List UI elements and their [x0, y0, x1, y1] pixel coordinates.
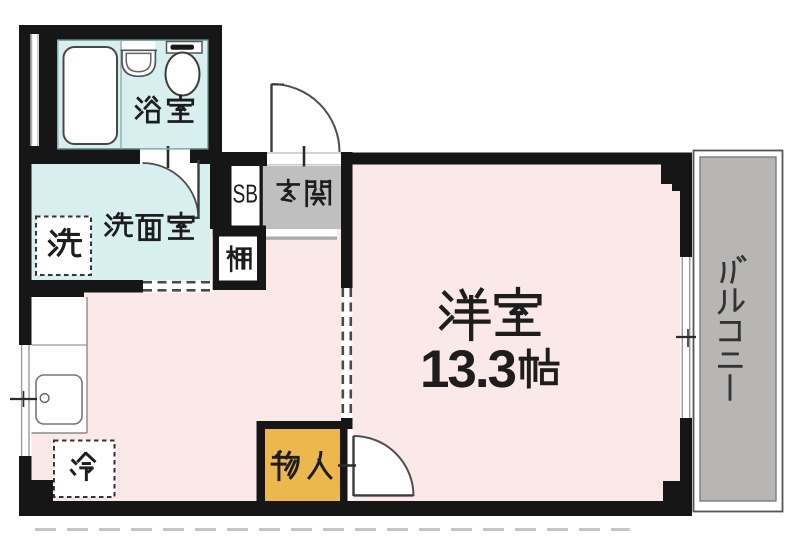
svg-text:SB: SB	[233, 179, 259, 209]
svg-text:13.3: 13.3	[420, 340, 517, 399]
